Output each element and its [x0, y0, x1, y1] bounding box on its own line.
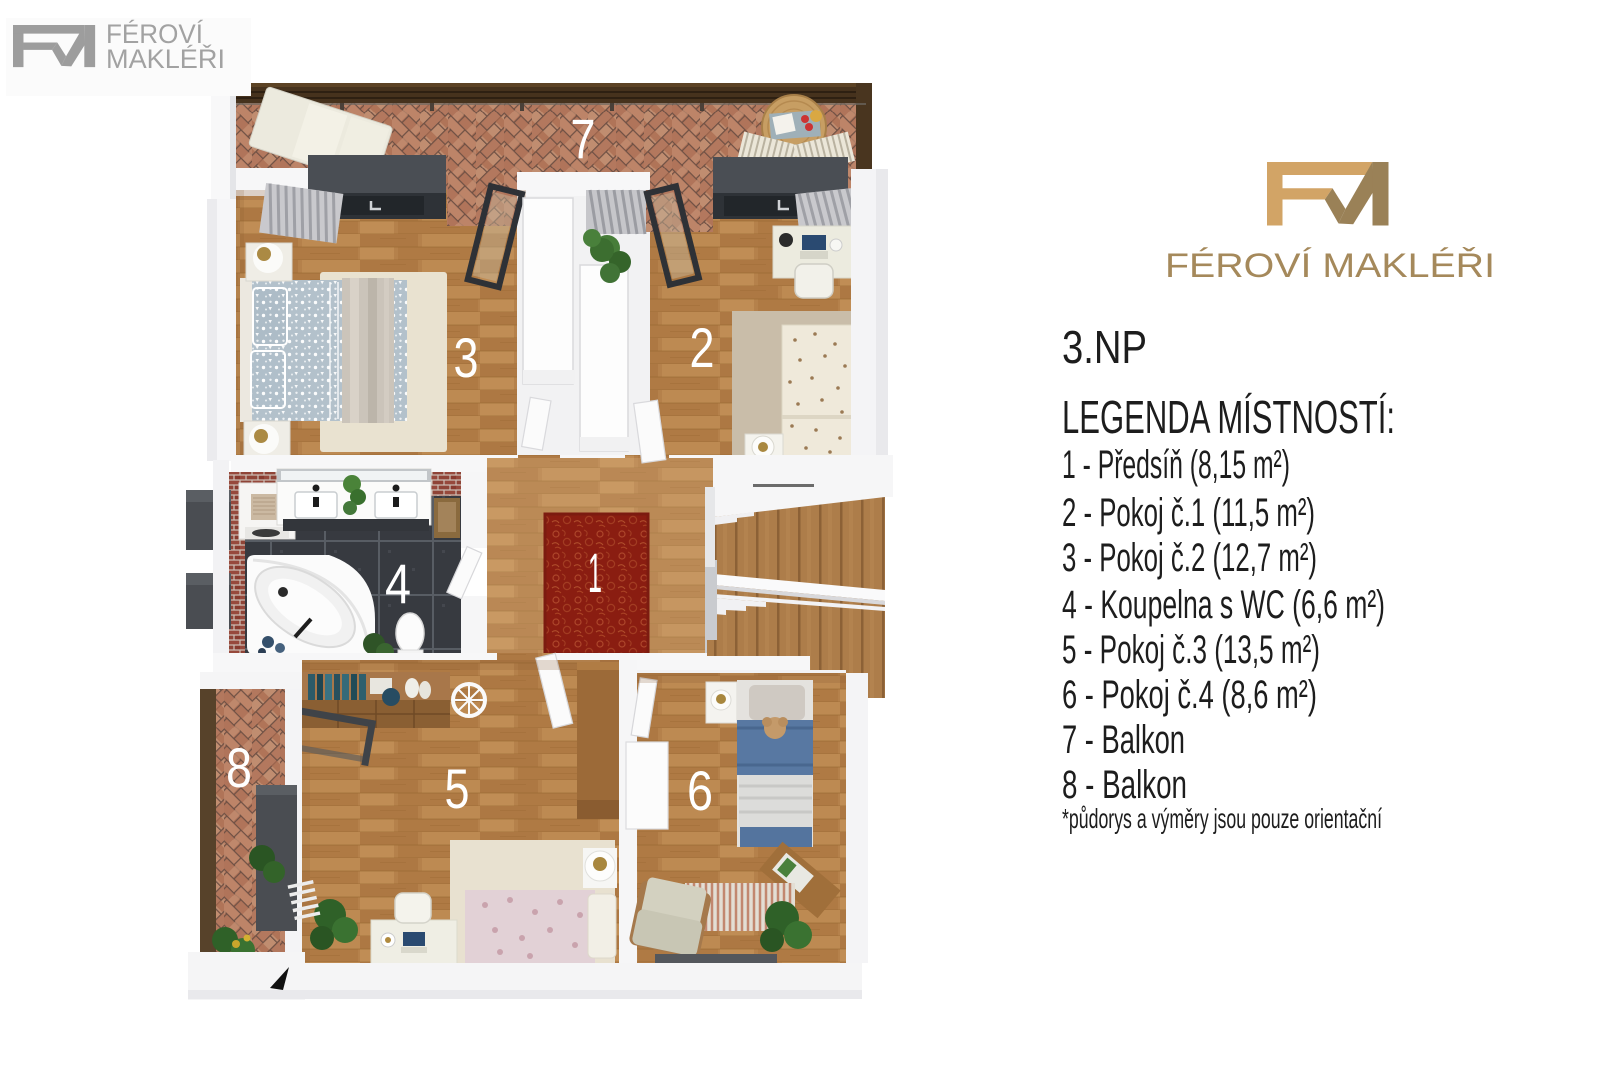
svg-text:6 - Pokoj č.4 (8,6 m²): 6 - Pokoj č.4 (8,6 m²) — [1062, 673, 1317, 717]
svg-text:5 - Pokoj č.3 (13,5 m²): 5 - Pokoj č.3 (13,5 m²) — [1062, 628, 1320, 672]
svg-text:1: 1 — [588, 541, 602, 604]
svg-text:1 - Předsíň (8,15 m²): 1 - Předsíň (8,15 m²) — [1062, 443, 1290, 487]
svg-text:4 - Koupelna s WC (6,6 m²): 4 - Koupelna s WC (6,6 m²) — [1062, 583, 1385, 627]
svg-text:7: 7 — [571, 107, 596, 170]
svg-text:FÉROVÍ MAKLÉŘI: FÉROVÍ MAKLÉŘI — [1165, 247, 1495, 285]
svg-text:4: 4 — [385, 552, 411, 615]
svg-text:3: 3 — [454, 326, 479, 389]
svg-text:6: 6 — [687, 759, 713, 822]
svg-text:MAKLÉŘI: MAKLÉŘI — [106, 43, 225, 74]
svg-text:LEGENDA MÍSTNOSTÍ:: LEGENDA MÍSTNOSTÍ: — [1062, 391, 1395, 443]
svg-text:8 - Balkon: 8 - Balkon — [1062, 763, 1187, 807]
svg-text:8: 8 — [226, 736, 252, 799]
svg-text:2: 2 — [690, 316, 715, 379]
svg-text:3.NP: 3.NP — [1062, 321, 1147, 373]
svg-text:5: 5 — [445, 757, 470, 820]
svg-text:*půdorys a výměry jsou pouze o: *půdorys a výměry jsou pouze orientační — [1062, 803, 1382, 834]
svg-text:3 - Pokoj č.2 (12,7 m²): 3 - Pokoj č.2 (12,7 m²) — [1062, 536, 1317, 580]
svg-text:7 - Balkon: 7 - Balkon — [1062, 718, 1185, 762]
svg-text:2 - Pokoj č.1 (11,5 m²): 2 - Pokoj č.1 (11,5 m²) — [1062, 491, 1315, 535]
